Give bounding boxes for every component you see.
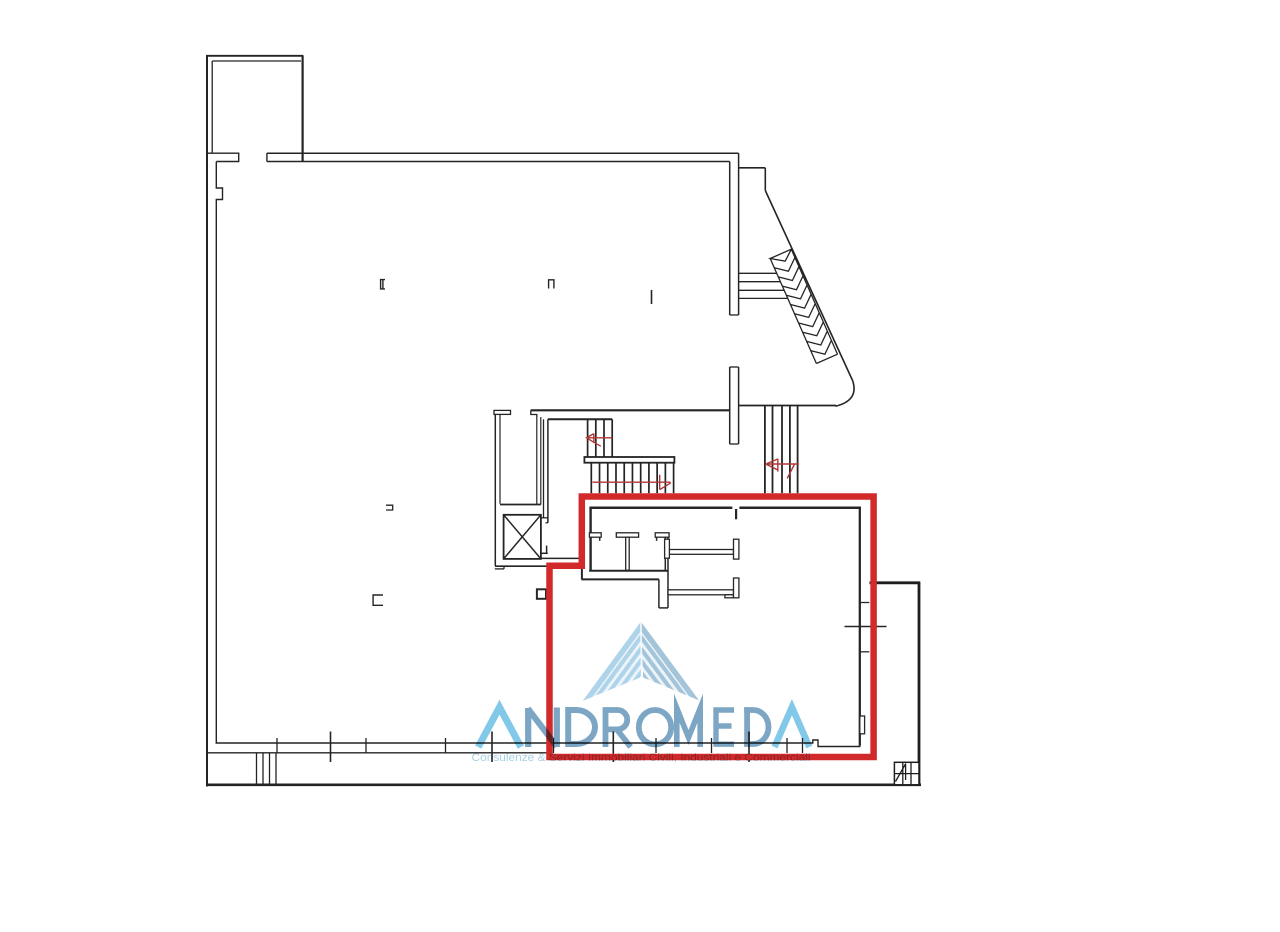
svg-text:Consulenze & Servizi Immobilia: Consulenze & Servizi Immobiliari Civili,…: [472, 752, 811, 764]
